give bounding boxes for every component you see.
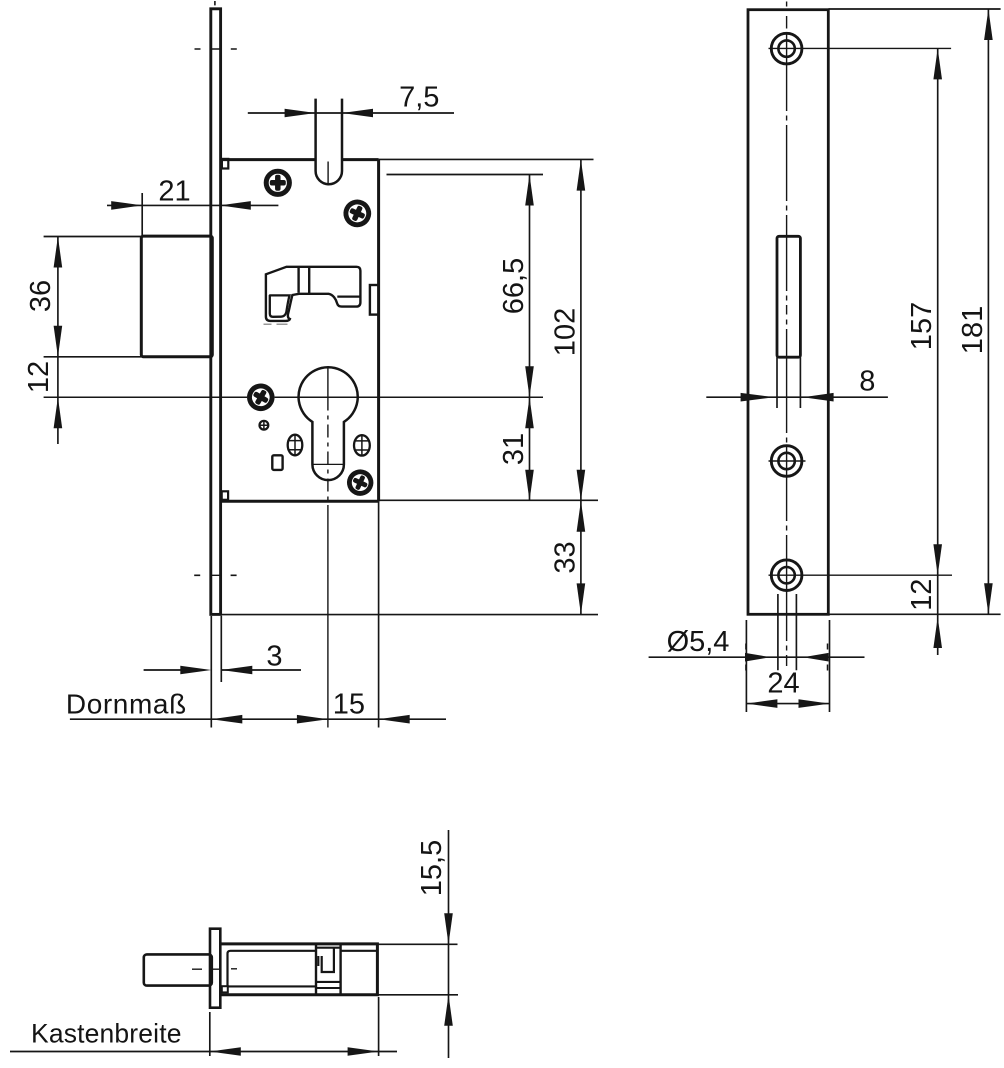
svg-text:157: 157: [906, 302, 938, 350]
svg-text:21: 21: [158, 176, 190, 208]
svg-text:Ø5,4: Ø5,4: [667, 626, 730, 658]
svg-text:102: 102: [550, 308, 582, 356]
svg-text:181: 181: [957, 306, 989, 354]
svg-text:24: 24: [767, 668, 799, 700]
svg-text:3: 3: [266, 641, 282, 673]
svg-text:8: 8: [859, 365, 875, 397]
svg-text:12: 12: [23, 361, 55, 393]
svg-text:15: 15: [333, 689, 365, 721]
svg-text:66,5: 66,5: [498, 258, 530, 314]
svg-text:31: 31: [498, 433, 530, 465]
svg-text:12: 12: [906, 579, 938, 611]
svg-text:33: 33: [550, 541, 582, 573]
svg-text:Kastenbreite: Kastenbreite: [31, 1019, 182, 1049]
svg-text:36: 36: [25, 280, 57, 312]
svg-text:7,5: 7,5: [399, 81, 439, 113]
svg-text:15,5: 15,5: [416, 840, 448, 896]
svg-text:Dornmaß: Dornmaß: [66, 689, 187, 720]
